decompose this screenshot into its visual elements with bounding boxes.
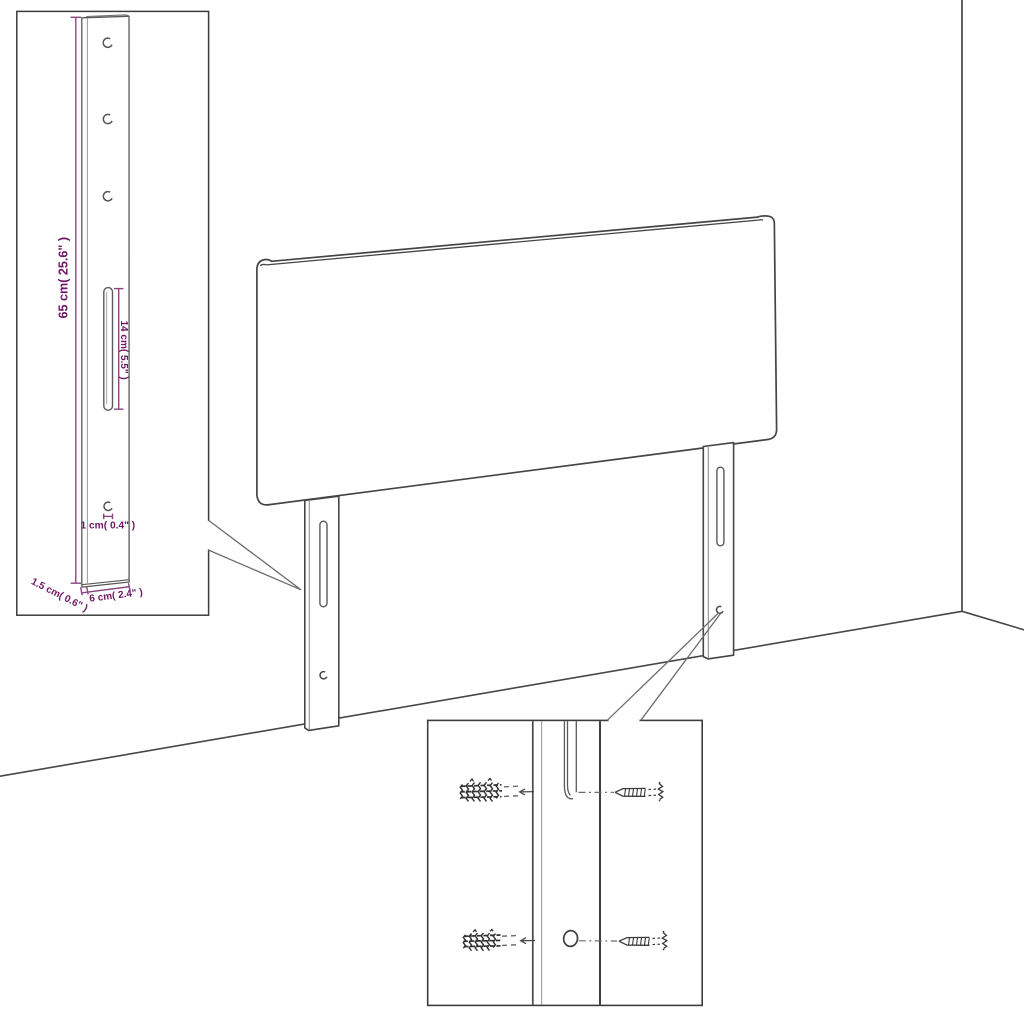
svg-text:14 cm( 5.5" ): 14 cm( 5.5" ): [118, 321, 129, 380]
svg-text:1 cm( 0.4" ): 1 cm( 0.4" ): [81, 521, 136, 532]
svg-text:65 cm( 25.6" ): 65 cm( 25.6" ): [57, 237, 71, 319]
